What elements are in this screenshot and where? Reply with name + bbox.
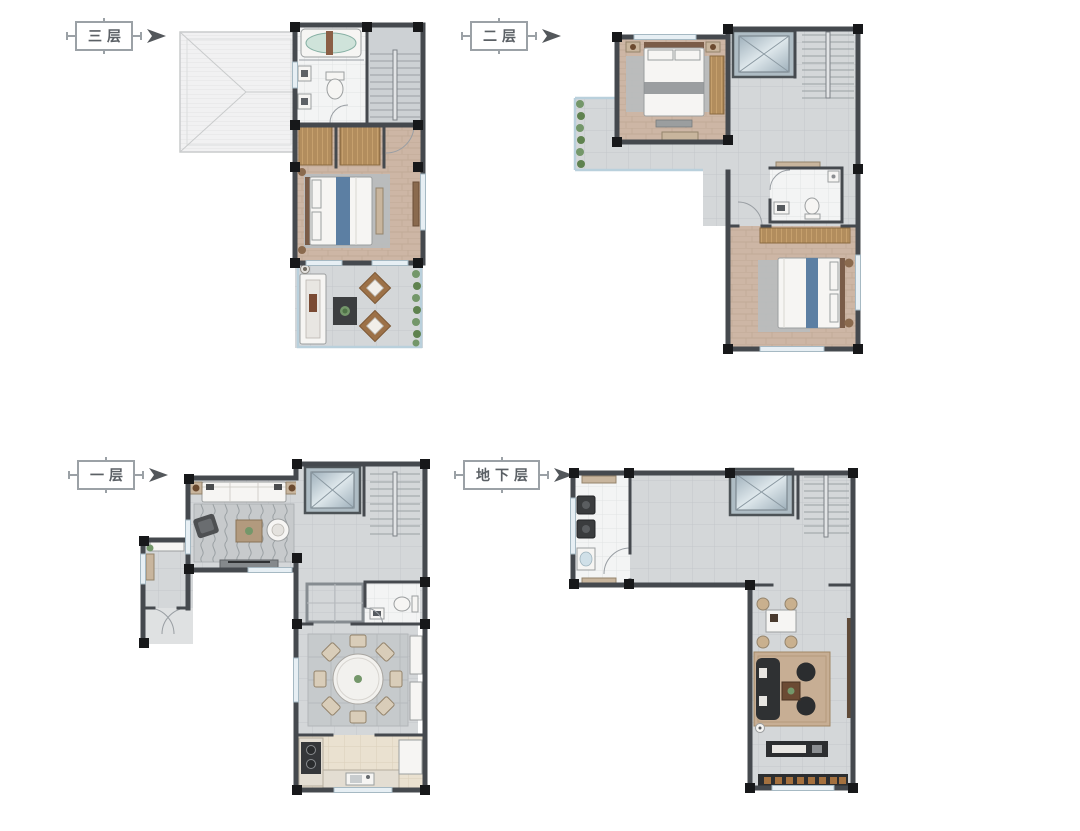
floor-label-third-floor: 三层: [75, 21, 133, 51]
arrow-right-icon: [147, 29, 166, 43]
bathroom: [365, 582, 420, 626]
arrow-right-icon: [542, 29, 561, 43]
bathroom: [770, 168, 842, 222]
floor-label-basement: 地下层: [463, 460, 540, 490]
floor-header-third-floor: 三层: [75, 21, 166, 51]
floor-label-text: 地下层: [476, 467, 533, 483]
living-room: [188, 478, 298, 570]
floor-header-second-floor: 二层: [470, 21, 561, 51]
floor-label-text: 三层: [88, 28, 126, 44]
floorplan-third-floor-drawing: [178, 22, 428, 354]
floorplan-second-floor-drawing: [562, 20, 870, 354]
elevator: [733, 31, 795, 77]
floorplan-sheet: 三层 二层 一层 地下层: [0, 0, 1080, 831]
family-room: [750, 585, 853, 788]
floor-label-first-floor: 一层: [77, 460, 135, 490]
elevator: [730, 469, 793, 515]
label-tick-left: [69, 474, 78, 476]
label-tick-right: [132, 35, 141, 37]
label-tick-left: [455, 474, 464, 476]
label-tick-left: [67, 35, 76, 37]
label-tick-left: [462, 35, 471, 37]
roof: [180, 32, 298, 152]
bedroom-upper: [617, 37, 728, 142]
floorplan-first-floor-drawing: [136, 458, 432, 798]
terrace: [295, 263, 423, 348]
floor-label-second-floor: 二层: [470, 21, 528, 51]
floor-label-text: 一层: [90, 467, 128, 483]
stairwell: [370, 472, 420, 536]
floorplan-basement-drawing: [560, 458, 870, 796]
label-tick-right: [527, 35, 536, 37]
stairwell: [367, 25, 423, 125]
floor-header-basement: 地下层: [463, 460, 573, 490]
label-tick-right: [539, 474, 548, 476]
dining-room: [296, 624, 422, 735]
utility-room: [573, 475, 630, 585]
bedroom: [295, 125, 423, 263]
kitchen: [296, 735, 425, 788]
floor-label-text: 二层: [483, 28, 521, 44]
elevator: [305, 467, 360, 513]
bathroom: [295, 25, 367, 125]
